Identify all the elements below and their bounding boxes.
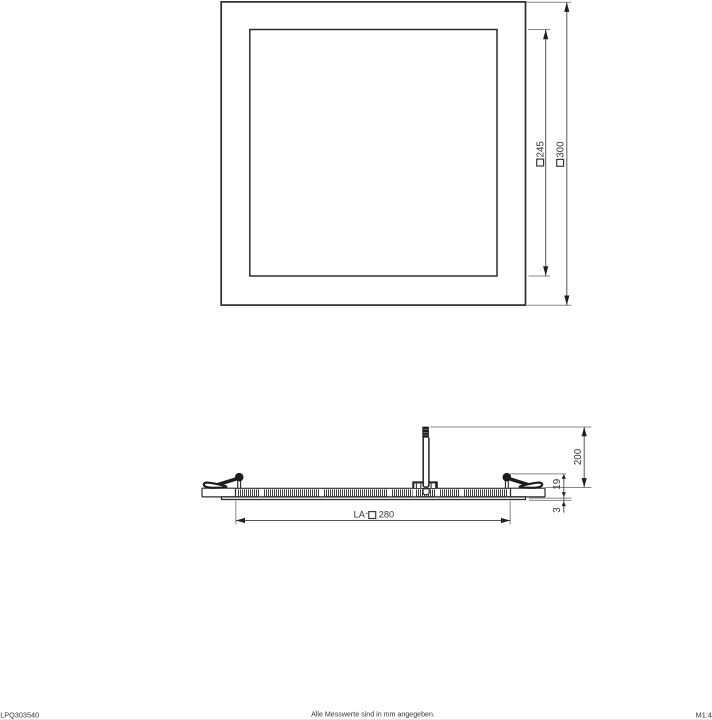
svg-text:LPQ303540: LPQ303540 — [0, 710, 39, 719]
svg-text:M1:4: M1:4 — [696, 711, 712, 720]
svg-text:LA: LA — [354, 509, 366, 519]
svg-text:245: 245 — [536, 141, 547, 158]
svg-text:19: 19 — [552, 479, 563, 490]
svg-text:3: 3 — [552, 507, 563, 513]
svg-text:Alle Messwerte sind in mm ange: Alle Messwerte sind in mm angegeben. — [311, 710, 435, 718]
svg-text:280: 280 — [379, 509, 394, 519]
svg-text:300: 300 — [556, 141, 567, 158]
svg-text:200: 200 — [573, 448, 584, 465]
